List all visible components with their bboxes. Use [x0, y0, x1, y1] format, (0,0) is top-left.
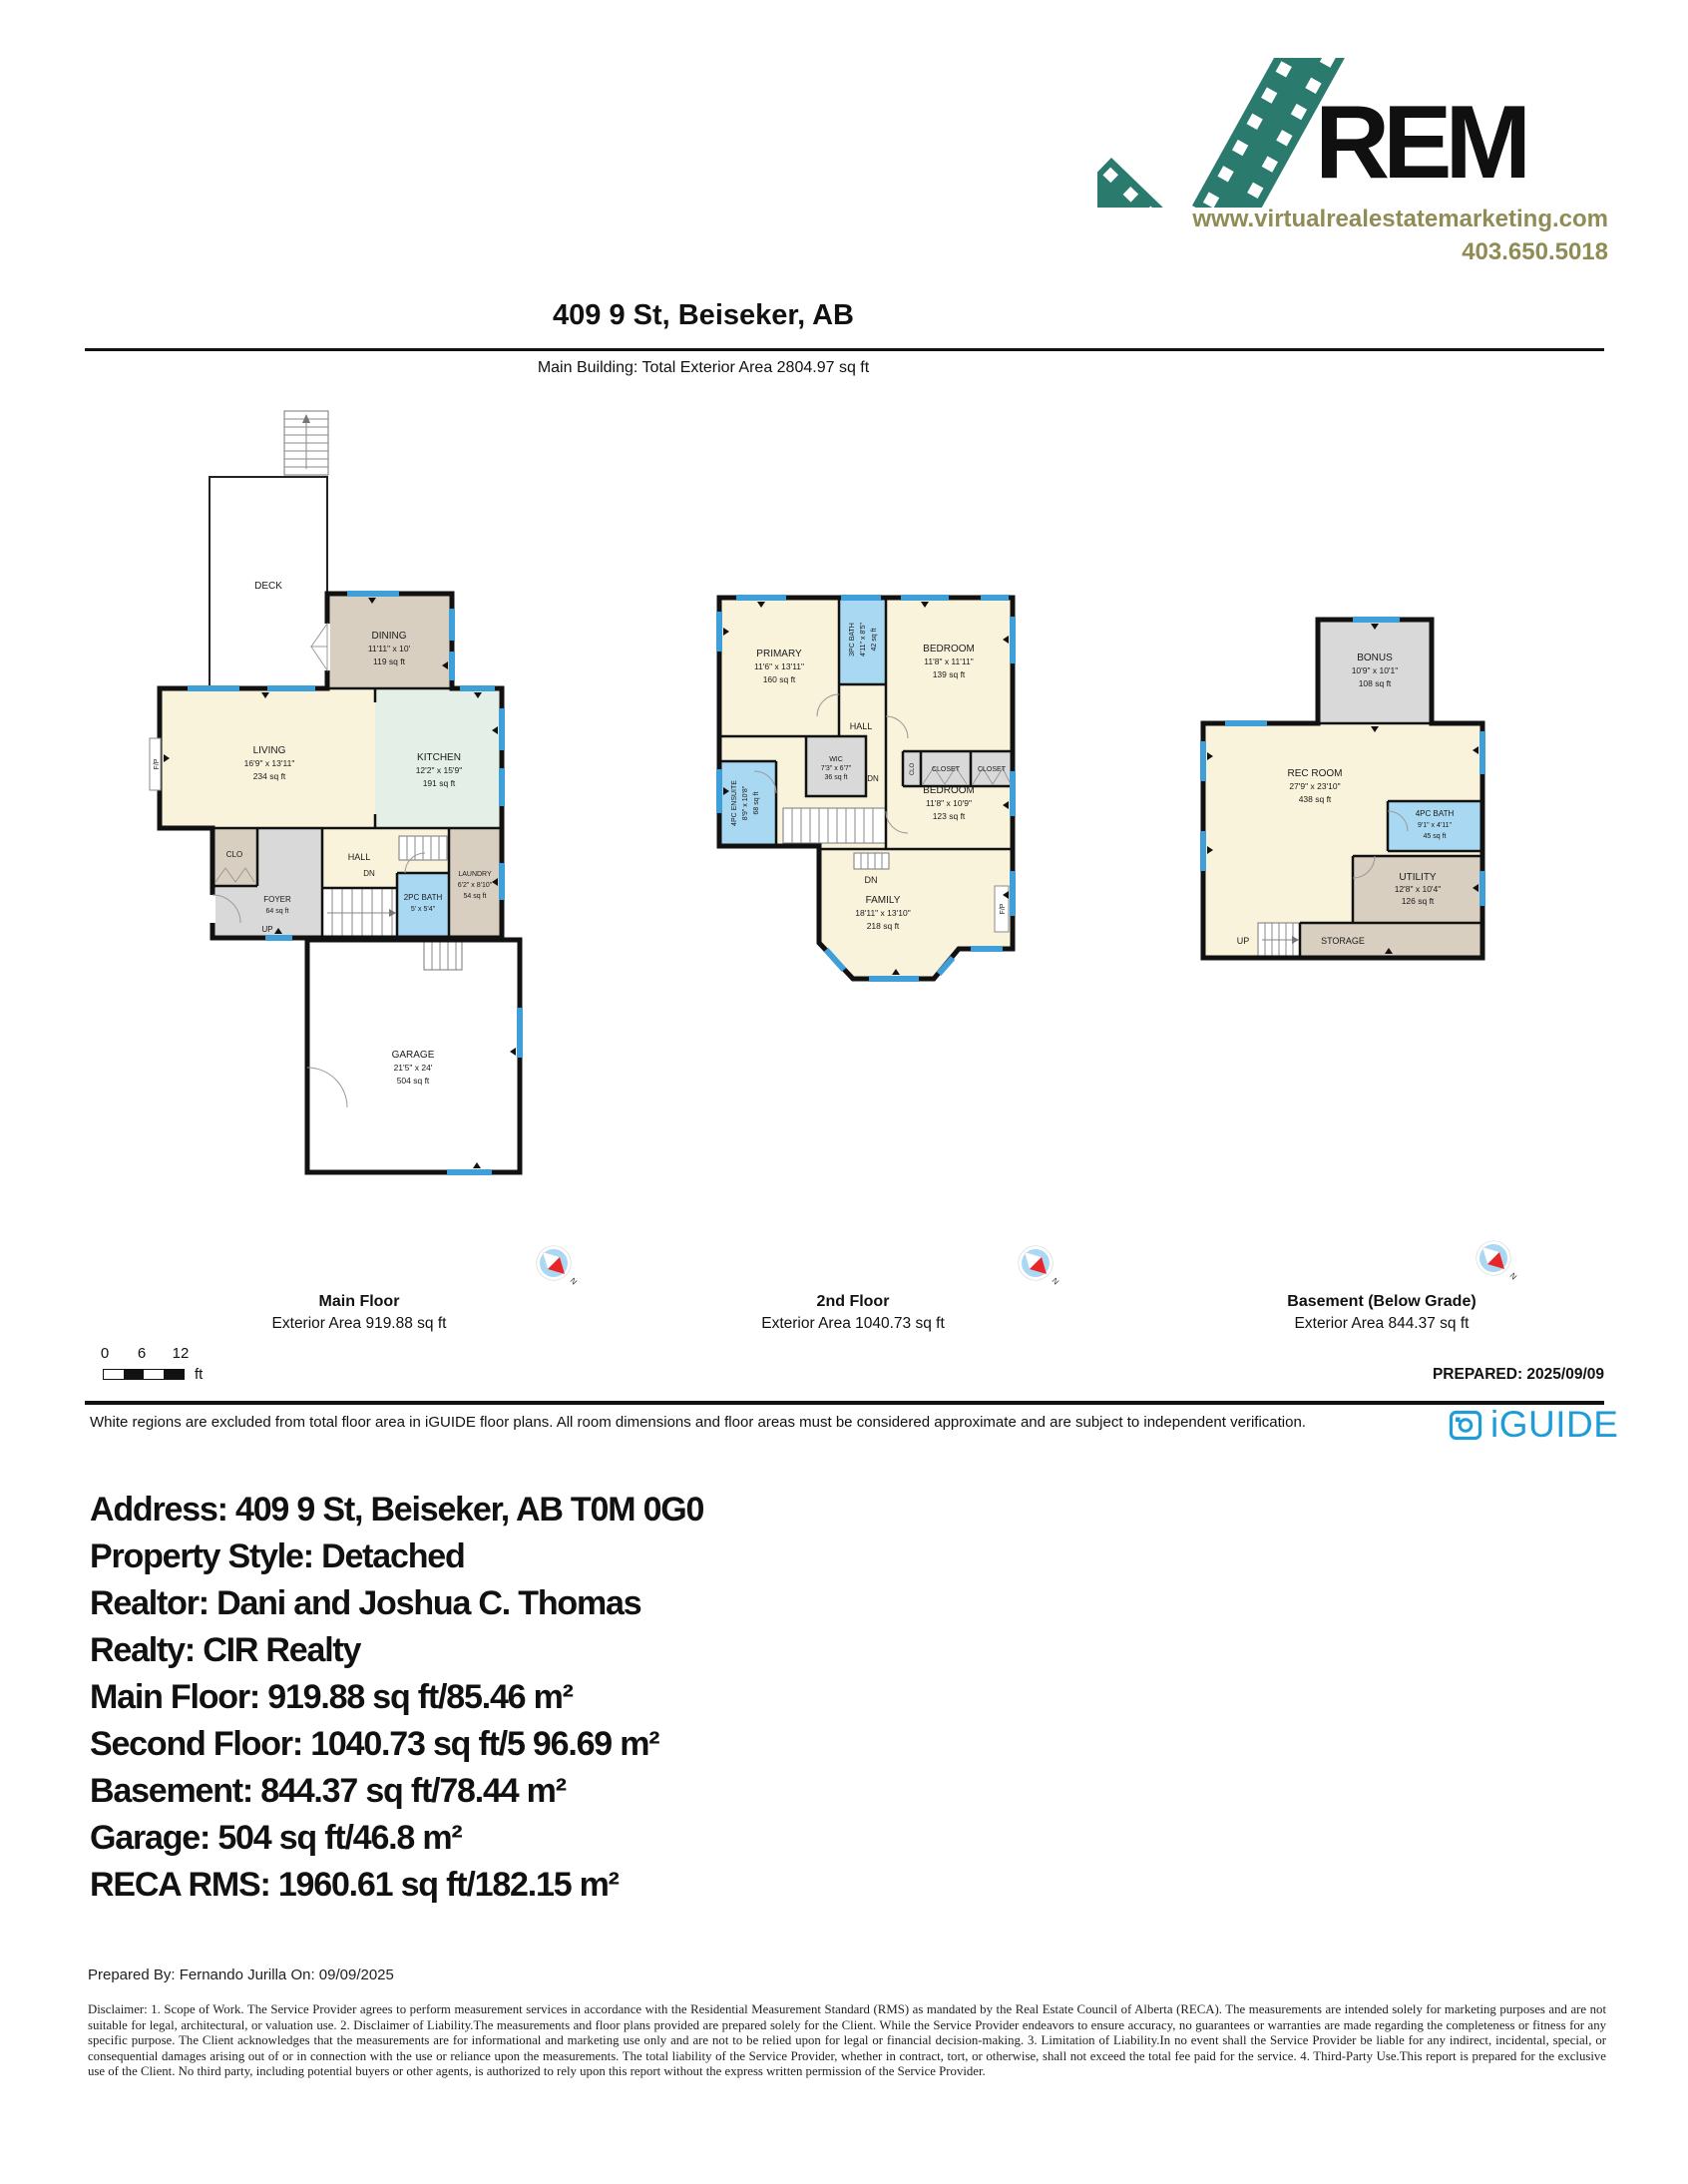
living-dims: 16'9" x 13'11" — [244, 758, 295, 768]
prepared-date: PREPARED: 2025/09/09 — [998, 1366, 1604, 1384]
scale-tick-12: 12 — [173, 1345, 190, 1362]
second-floor-area: Exterior Area 1040.73 sq ft — [703, 1315, 1003, 1333]
living-name: LIVING — [253, 745, 286, 756]
vrem-logo: REM — [1097, 58, 1608, 208]
utility-name: UTILITY — [1399, 872, 1437, 883]
up-label: UP — [261, 925, 272, 934]
info-realtor: Realtor: Dani and Joshua C. Thomas — [90, 1580, 1187, 1627]
bonus-area: 108 sq ft — [1359, 678, 1392, 688]
dining-dims: 11'11" x 10' — [368, 644, 411, 654]
logo-website: www.virtualrealestatemarketing.com — [1097, 206, 1608, 233]
dn2-label: DN — [865, 875, 878, 885]
wic-area: 36 sq ft — [825, 774, 848, 781]
garage-stairs — [424, 942, 462, 970]
up-stairs-run — [1258, 923, 1300, 958]
bath-name: 2PC BATH — [404, 893, 443, 902]
garage-name: GARAGE — [392, 1050, 435, 1061]
hall-label: HALL — [850, 721, 873, 731]
up-label: UP — [1237, 936, 1250, 946]
bedroom2-dims: 11'8" x 10'9" — [926, 798, 972, 808]
ensuite-dims: 8'9" x 10'8" — [742, 785, 749, 820]
north-label: N — [569, 1276, 580, 1287]
basement-plan: BONUS 10'9" x 10'1" 108 sq ft REC ROOM 2… — [1195, 617, 1494, 966]
garage-area: 504 sq ft — [397, 1076, 430, 1086]
deck-label: DECK — [254, 581, 282, 592]
caption-second-floor: 2nd Floor Exterior Area 1040.73 sq ft — [703, 1293, 1003, 1333]
basement-area: Exterior Area 844.37 sq ft — [1232, 1315, 1531, 1333]
up-stairs-run — [322, 888, 397, 938]
page-subtitle: Main Building: Total Exterior Area 2804.… — [105, 359, 1302, 377]
main-floor-name: Main Floor — [210, 1293, 509, 1311]
info-reca-rms: RECA RMS: 1960.61 sq ft/182.15 m² — [90, 1862, 1187, 1909]
footer-note: White regions are excluded from total fl… — [90, 1414, 1417, 1431]
dining-area: 119 sq ft — [373, 656, 406, 666]
bonus-dims: 10'9" x 10'1" — [1352, 665, 1399, 675]
bath-dims: 5' x 5'4" — [411, 906, 436, 913]
info-address: Address: 409 9 St, Beiseker, AB T0M 0G0 — [90, 1487, 1187, 1533]
main-floor-plan: DN DECK — [148, 409, 547, 1182]
closet2-label: CLOSET — [978, 766, 1007, 773]
north-label: N — [1051, 1276, 1061, 1287]
property-info: Address: 409 9 St, Beiseker, AB T0M 0G0 … — [90, 1487, 1187, 1909]
kitchen-name: KITCHEN — [417, 752, 461, 763]
iguide-wordmark: iGUIDE — [1490, 1404, 1618, 1446]
bath3pc-area: 42 sq ft — [871, 628, 878, 651]
bedroom1-area: 139 sq ft — [933, 669, 966, 679]
rec-name: REC ROOM — [1288, 768, 1343, 779]
primary-dims: 11'6" x 13'11" — [754, 661, 804, 671]
bath4pc-dims: 9'1" x 4'11" — [1418, 822, 1452, 829]
storage-label: STORAGE — [1321, 936, 1365, 946]
bath4pc-name: 4PC BATH — [1416, 809, 1455, 818]
family-name: FAMILY — [866, 895, 901, 906]
primary-area: 160 sq ft — [763, 674, 796, 684]
scale-tick-0: 0 — [101, 1345, 109, 1362]
wic-dims: 7'3" x 6'7" — [821, 765, 852, 772]
fireplace-label: F/P — [1000, 903, 1007, 914]
bedroom2-area: 123 sq ft — [933, 811, 966, 821]
scale-tick-6: 6 — [138, 1345, 146, 1362]
main-floor-area: Exterior Area 919.88 sq ft — [210, 1315, 509, 1333]
living-area: 234 sq ft — [253, 771, 286, 781]
dn1-label: DN — [867, 774, 879, 783]
basement-stairs-run — [399, 836, 447, 860]
scale-bar-segments — [103, 1369, 185, 1380]
title-divider — [85, 348, 1604, 351]
bath3pc-dims: 4'11" x 8'5" — [860, 622, 867, 655]
info-main-floor: Main Floor: 919.88 sq ft/85.46 m² — [90, 1674, 1187, 1721]
basement-name: Basement (Below Grade) — [1232, 1293, 1531, 1311]
clo-label: CLO — [226, 850, 242, 859]
bath3pc-name: 3PC BATH — [849, 623, 856, 656]
info-realty: Realty: CIR Realty — [90, 1627, 1187, 1674]
laundry-area: 54 sq ft — [464, 893, 487, 900]
deck-stairs — [284, 411, 328, 475]
info-second-floor: Second Floor: 1040.73 sq ft/5 96.69 m² — [90, 1721, 1187, 1768]
utility-area: 126 sq ft — [1402, 896, 1435, 906]
kitchen-dims: 12'2" x 15'9" — [416, 765, 463, 775]
prepared-by-line: Prepared By: Fernando Jurilla On: 09/09/… — [88, 1966, 394, 1983]
info-garage: Garage: 504 sq ft/46.8 m² — [90, 1815, 1187, 1862]
info-basement: Basement: 844.37 sq ft/78.44 m² — [90, 1768, 1187, 1815]
garage-dims: 21'5" x 24' — [394, 1063, 433, 1073]
ensuite-name: 4PC ENSUITE — [731, 780, 738, 826]
utility-dims: 12'8" x 10'4" — [1395, 884, 1442, 894]
scale-unit: ft — [195, 1366, 203, 1383]
info-style: Property Style: Detached — [90, 1533, 1187, 1580]
wic-name: WIC — [829, 756, 843, 763]
bonus-name: BONUS — [1357, 653, 1393, 663]
rec-dims: 27'9" x 23'10" — [1289, 781, 1340, 791]
compass-second-floor: N — [1016, 1243, 1061, 1289]
second-floor-name: 2nd Floor — [703, 1293, 1003, 1311]
bath4pc-area: 45 sq ft — [1424, 833, 1447, 840]
family-dims: 18'11" x 13'10" — [855, 908, 910, 918]
iguide-logo: iGUIDE — [1449, 1404, 1618, 1446]
caption-basement: Basement (Below Grade) Exterior Area 844… — [1232, 1293, 1531, 1333]
mini-stairs — [854, 853, 889, 869]
legal-disclaimer: Disclaimer: 1. Scope of Work. The Servic… — [88, 2002, 1606, 2080]
compass-main-floor: N — [534, 1243, 580, 1289]
foyer-area: 64 sq ft — [266, 908, 289, 915]
north-label: N — [1508, 1271, 1519, 1282]
family-area: 218 sq ft — [867, 921, 900, 931]
iguide-camera-icon — [1449, 1407, 1484, 1443]
caption-main-floor: Main Floor Exterior Area 919.88 sq ft — [210, 1293, 509, 1333]
fireplace-label: F/P — [154, 758, 161, 769]
stairs-run — [783, 808, 886, 843]
dn-label: DN — [363, 869, 375, 878]
closet1-label: CLOSET — [932, 766, 961, 773]
ensuite-area: 68 sq ft — [753, 791, 760, 814]
bedroom1-name: BEDROOM — [923, 644, 975, 655]
second-floor-plan: F/P PRIMARY 11'6" x 13'11" 160 sq ft 3PC… — [691, 572, 1031, 1016]
compass-basement: N — [1474, 1238, 1519, 1284]
bedroom2-name: BEDROOM — [923, 785, 975, 796]
foyer-name: FOYER — [263, 895, 291, 904]
bedroom1-dims: 11'8" x 11'11" — [924, 656, 973, 666]
rec-area: 438 sq ft — [1299, 794, 1332, 804]
floor-plan-report-page: REM www.virtualrealestatemarketing.com 4… — [0, 0, 1688, 2184]
logo-brand-text: REM — [1315, 85, 1524, 201]
kitchen-area: 191 sq ft — [423, 778, 456, 788]
footer-divider — [85, 1401, 1604, 1405]
hall-label: HALL — [348, 852, 371, 862]
dining-name: DINING — [372, 631, 407, 642]
logo-phone: 403.650.5018 — [1097, 238, 1608, 266]
laundry-name: LAUNDRY — [458, 871, 492, 878]
scale-bar: 0 6 12 ft — [103, 1345, 342, 1389]
primary-name: PRIMARY — [756, 649, 802, 659]
laundry-dims: 6'2" x 8'10" — [458, 882, 493, 889]
page-title: 409 9 St, Beiseker, AB — [553, 299, 854, 331]
clo-label: CLO — [910, 763, 916, 776]
